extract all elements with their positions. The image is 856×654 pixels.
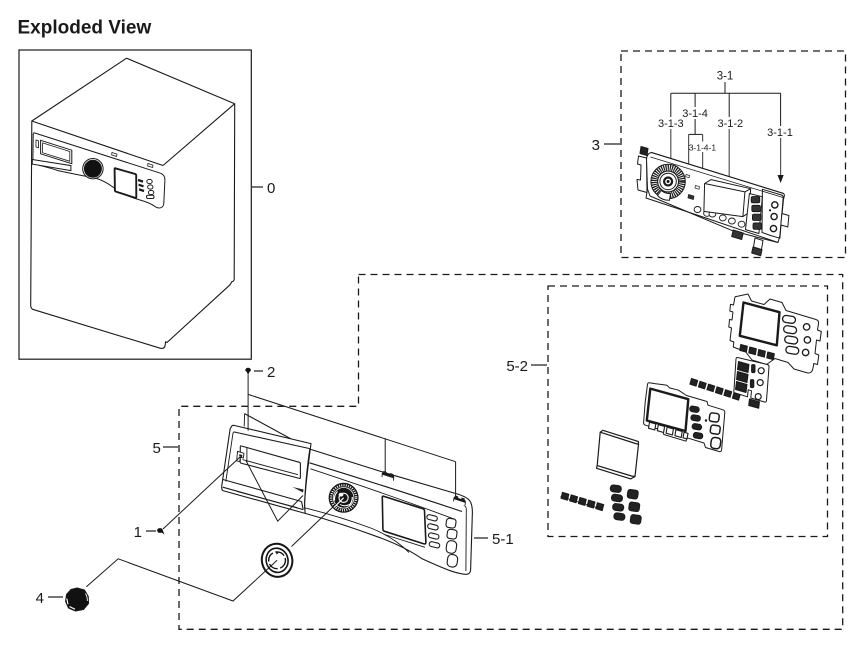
svg-text:1: 1: [134, 524, 142, 541]
svg-text:3-1-1: 3-1-1: [767, 127, 793, 139]
svg-text:3-1-2: 3-1-2: [717, 118, 743, 130]
svg-text:3-1-4: 3-1-4: [682, 108, 708, 120]
svg-text:3-1-3: 3-1-3: [658, 118, 684, 130]
svg-text:3-1: 3-1: [717, 71, 734, 83]
svg-text:Exploded View: Exploded View: [18, 18, 152, 39]
svg-text:4: 4: [36, 590, 44, 607]
svg-text:5-2: 5-2: [506, 358, 528, 375]
svg-text:3: 3: [592, 137, 600, 154]
svg-text:5: 5: [153, 440, 161, 457]
svg-text:3-1-4-1: 3-1-4-1: [689, 143, 717, 153]
svg-text:2: 2: [267, 364, 275, 381]
svg-text:5-1: 5-1: [492, 531, 514, 548]
svg-text:0: 0: [267, 180, 275, 197]
